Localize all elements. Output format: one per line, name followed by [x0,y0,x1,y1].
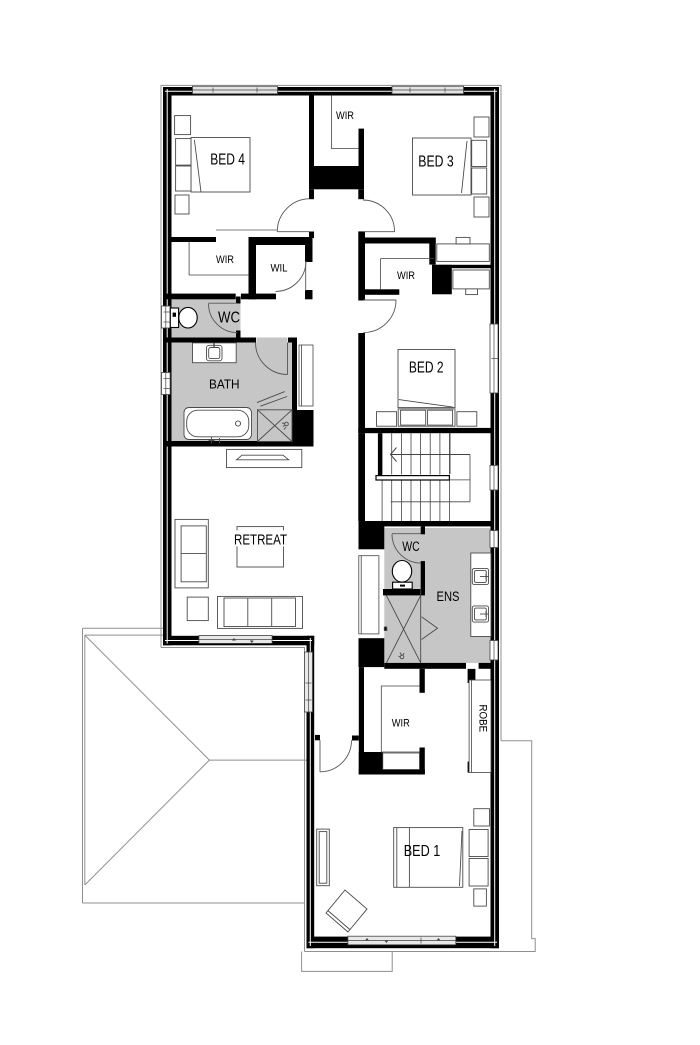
svg-text:WC: WC [218,310,240,327]
svg-text:BATH: BATH [209,378,240,392]
svg-text:WIR: WIR [397,270,415,282]
svg-text:BED 3: BED 3 [418,154,453,171]
svg-text:BED 1: BED 1 [404,843,441,860]
svg-text:WIR: WIR [216,254,234,266]
svg-text:WIL: WIL [271,263,288,275]
svg-text:RETREAT: RETREAT [234,531,287,548]
svg-text:WIR: WIR [392,718,410,730]
svg-text:BED 4: BED 4 [210,151,245,168]
svg-text:ROBE: ROBE [476,705,488,733]
svg-text:BED 2: BED 2 [409,360,444,377]
svg-text:WC: WC [402,539,420,554]
svg-text:ENS: ENS [437,589,460,604]
svg-text:WIR: WIR [336,110,354,122]
